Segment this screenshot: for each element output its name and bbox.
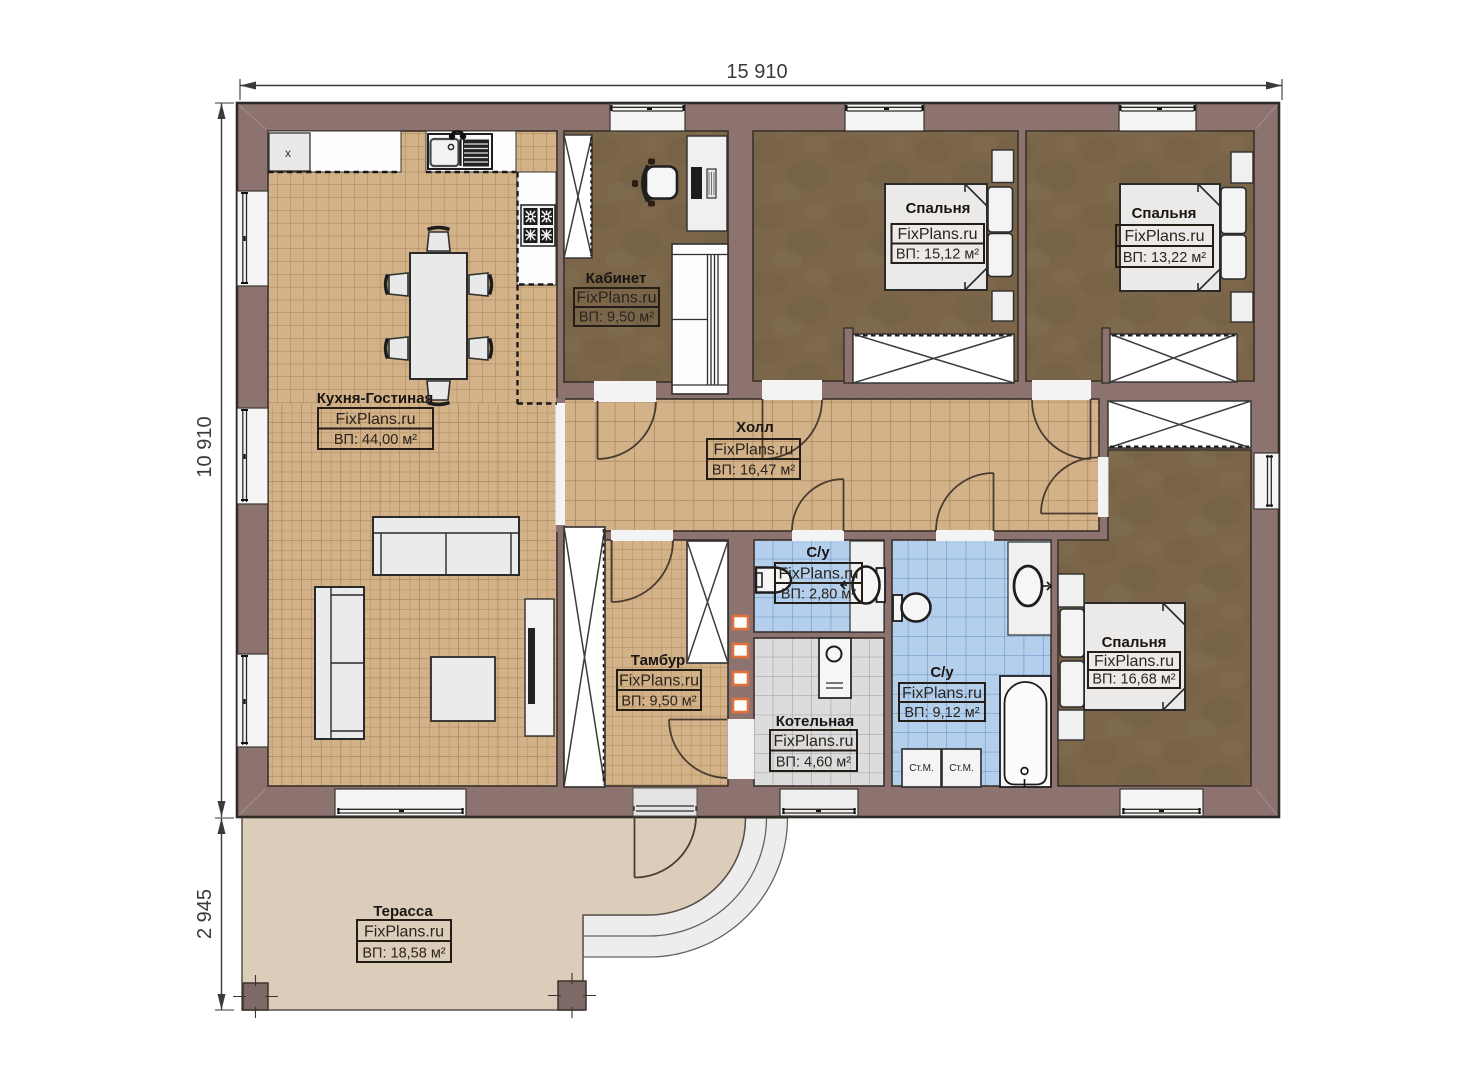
svg-text:FixPlans.ru: FixPlans.ru	[1094, 653, 1174, 670]
svg-text:FixPlans.ru: FixPlans.ru	[364, 924, 444, 941]
svg-text:Холл: Холл	[736, 419, 774, 436]
svg-text:Котельная: Котельная	[776, 713, 855, 730]
svg-text:FixPlans.ru: FixPlans.ru	[1124, 228, 1204, 245]
svg-text:Спальня: Спальня	[1132, 205, 1197, 222]
svg-text:FixPlans.ru: FixPlans.ru	[897, 226, 977, 243]
svg-text:Спальня: Спальня	[906, 200, 971, 217]
svg-text:Ст.М.: Ст.М.	[949, 763, 974, 774]
svg-text:FixPlans.ru: FixPlans.ru	[773, 733, 853, 750]
svg-text:FixPlans.ru: FixPlans.ru	[902, 685, 982, 702]
svg-text:ВП: 2,80 м²: ВП: 2,80 м²	[781, 587, 856, 603]
svg-text:С/у: С/у	[806, 544, 830, 561]
svg-text:10 910: 10 910	[194, 416, 216, 477]
svg-text:Спальня: Спальня	[1102, 634, 1167, 651]
svg-text:Тамбур: Тамбур	[631, 652, 685, 669]
svg-text:ВП: 9,50 м²: ВП: 9,50 м²	[621, 694, 696, 710]
svg-text:ВП: 18,58 м²: ВП: 18,58 м²	[362, 946, 445, 962]
svg-text:Ст.М.: Ст.М.	[909, 763, 934, 774]
svg-text:ВП: 44,00 м²: ВП: 44,00 м²	[334, 432, 417, 448]
svg-text:FixPlans.ru: FixPlans.ru	[619, 673, 699, 690]
svg-text:x: x	[285, 146, 291, 160]
svg-text:ВП: 9,12 м²: ВП: 9,12 м²	[904, 705, 979, 721]
svg-text:FixPlans.ru: FixPlans.ru	[713, 442, 793, 459]
svg-text:FixPlans.ru: FixPlans.ru	[778, 566, 858, 583]
svg-text:15 910: 15 910	[726, 61, 787, 83]
svg-text:Кухня-Гостиная: Кухня-Гостиная	[317, 390, 434, 407]
svg-text:2 945: 2 945	[194, 889, 216, 939]
svg-text:ВП: 15,12 м²: ВП: 15,12 м²	[896, 247, 979, 263]
svg-text:ВП: 13,22 м²: ВП: 13,22 м²	[1123, 250, 1206, 266]
svg-text:С/у: С/у	[930, 664, 954, 681]
svg-text:ВП: 4,60 м²: ВП: 4,60 м²	[776, 755, 851, 771]
svg-text:Кабинет: Кабинет	[586, 270, 647, 287]
svg-text:FixPlans.ru: FixPlans.ru	[335, 411, 415, 428]
svg-text:ВП: 9,50 м²: ВП: 9,50 м²	[579, 310, 654, 326]
svg-text:FixPlans.ru: FixPlans.ru	[576, 290, 656, 307]
svg-text:ВП: 16,68 м²: ВП: 16,68 м²	[1092, 672, 1175, 688]
svg-text:ВП: 16,47 м²: ВП: 16,47 м²	[712, 463, 795, 479]
svg-text:Терасса: Терасса	[373, 903, 433, 920]
